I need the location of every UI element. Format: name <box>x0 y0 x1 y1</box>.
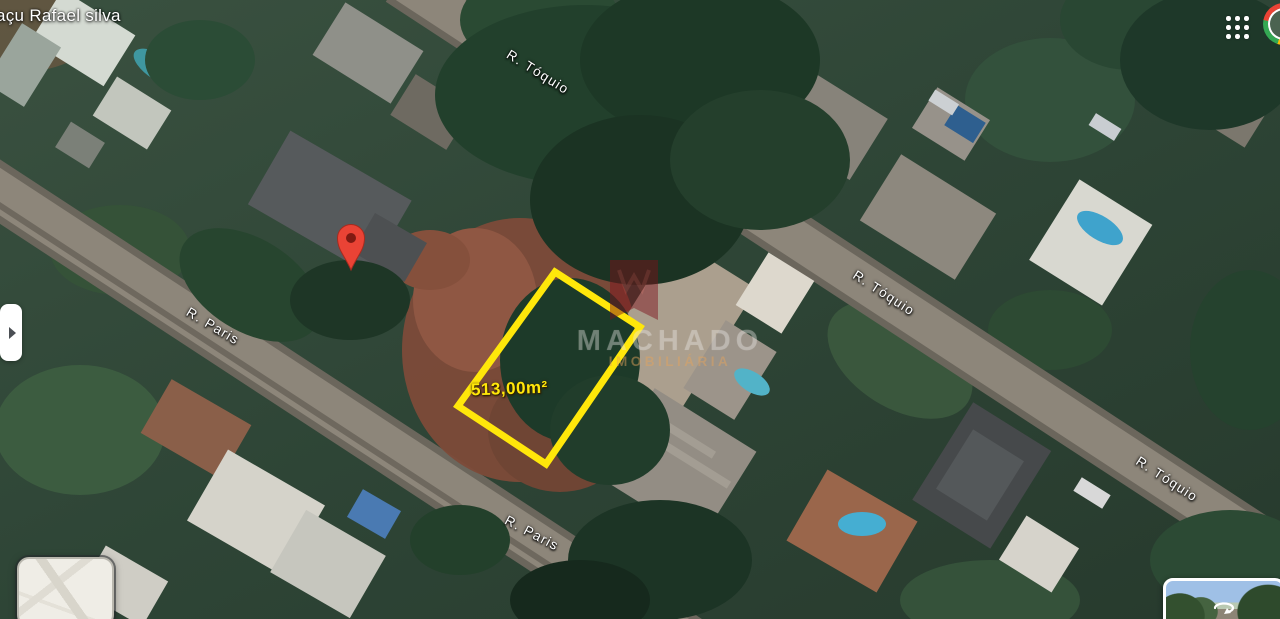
parcel-area-label: 513,00m² <box>471 378 548 401</box>
pan-360-arrow-icon <box>1209 598 1239 616</box>
watermark-brand-subtitle: IMOBILIÁRIA <box>586 354 754 369</box>
map-layer-toggle-thumbnail[interactable] <box>17 557 114 619</box>
chevron-right-icon <box>9 327 16 339</box>
map-viewport[interactable]: açu Rafael silva R. Tóquio R. Tóquio R. … <box>0 0 1280 619</box>
avatar-photo <box>1268 8 1280 40</box>
google-apps-grid-icon[interactable] <box>1226 16 1249 39</box>
map-pin-icon[interactable] <box>338 225 365 271</box>
side-panel-toggle-button[interactable] <box>0 304 22 361</box>
place-label-partial: açu Rafael silva <box>0 6 121 26</box>
realtor-shield-emblem-icon <box>607 258 661 334</box>
street-view-thumbnail[interactable] <box>1163 578 1280 619</box>
